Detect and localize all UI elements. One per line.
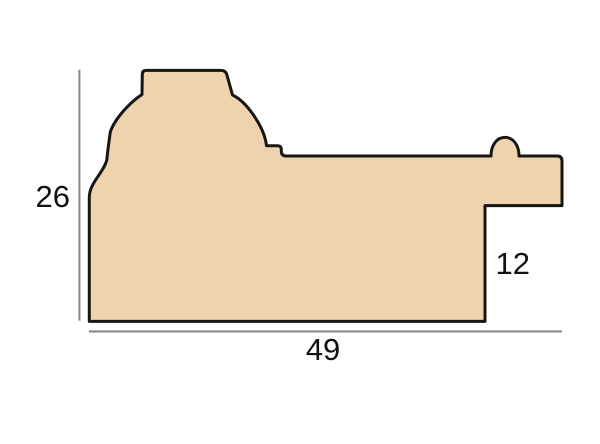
- svg-text:49: 49: [306, 332, 340, 367]
- svg-text:26: 26: [36, 179, 70, 214]
- svg-text:12: 12: [496, 246, 530, 281]
